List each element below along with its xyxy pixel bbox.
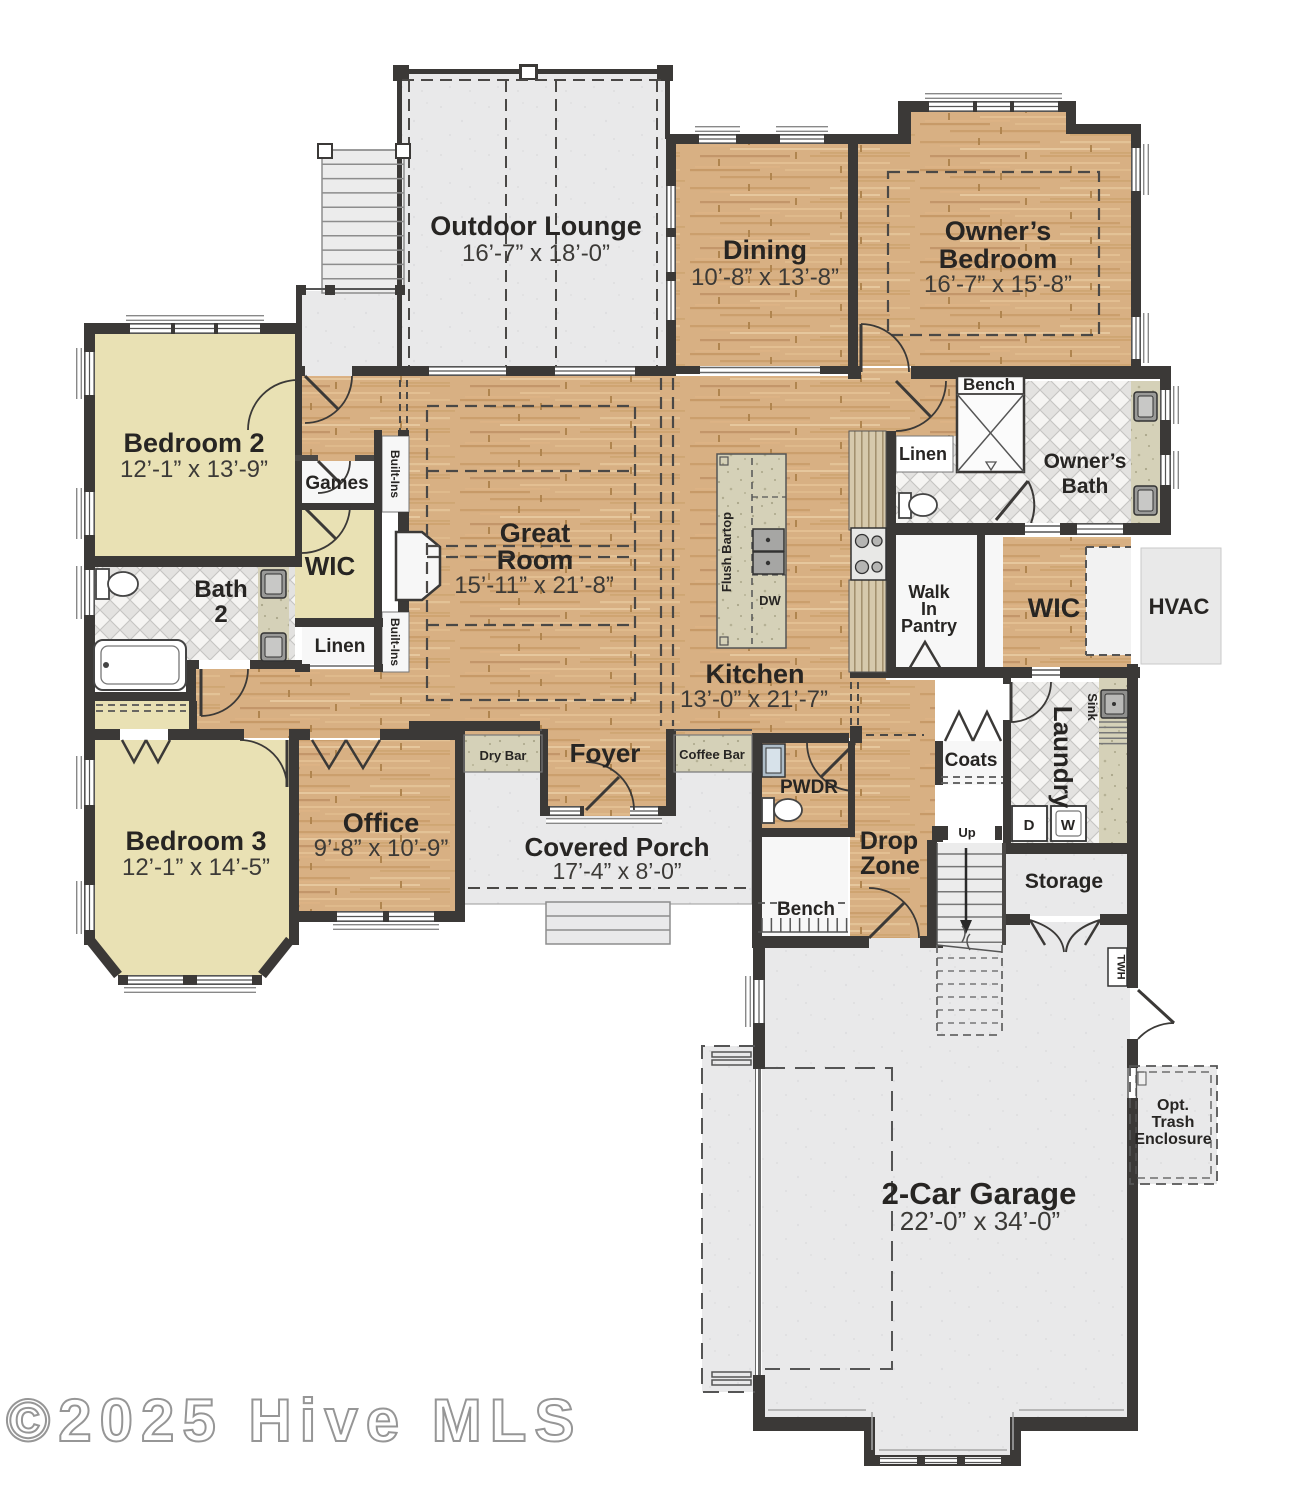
svg-text:DW: DW	[759, 593, 781, 608]
svg-text:Storage: Storage	[1025, 870, 1103, 893]
svg-text:Flush Bartop: Flush Bartop	[719, 512, 734, 592]
svg-text:Bedroom: Bedroom	[939, 244, 1058, 274]
svg-text:W: W	[1061, 817, 1076, 834]
svg-text:Games: Games	[305, 473, 368, 494]
svg-text:Bedroom 3: Bedroom 3	[125, 826, 266, 856]
svg-text:Owner’s: Owner’s	[1044, 450, 1127, 473]
svg-text:Coats: Coats	[945, 750, 998, 771]
svg-text:13’-0” x 21’-7”: 13’-0” x 21’-7”	[680, 686, 828, 713]
svg-text:16’-7” x 18’-0”: 16’-7” x 18’-0”	[462, 240, 610, 267]
svg-text:Room: Room	[497, 545, 574, 575]
svg-text:Kitchen: Kitchen	[705, 659, 804, 689]
svg-text:16’-7” x 15’-8”: 16’-7” x 15’-8”	[924, 271, 1072, 298]
svg-text:Bench: Bench	[777, 899, 835, 920]
svg-text:WIC: WIC	[1028, 593, 1080, 623]
svg-text:Sink: Sink	[1085, 693, 1100, 721]
svg-text:D: D	[1024, 817, 1035, 834]
svg-text:Linen: Linen	[899, 444, 947, 464]
svg-text:PWDR: PWDR	[780, 777, 838, 798]
svg-text:Office: Office	[343, 808, 420, 838]
svg-text:HVAC: HVAC	[1149, 594, 1210, 619]
svg-text:Great: Great	[500, 518, 571, 548]
svg-text:12’-1” x 14’-5”: 12’-1” x 14’-5”	[122, 854, 270, 881]
svg-text:Dry Bar: Dry Bar	[480, 748, 527, 763]
svg-text:Up: Up	[958, 825, 975, 840]
svg-text:Enclosure: Enclosure	[1134, 1131, 1211, 1148]
svg-text:Bench: Bench	[963, 375, 1015, 394]
svg-text:Bedroom 2: Bedroom 2	[123, 428, 264, 458]
svg-text:17’-4” x 8’-0”: 17’-4” x 8’-0”	[552, 858, 681, 884]
svg-text:©2025 Hive MLS: ©2025 Hive MLS	[6, 1387, 582, 1454]
svg-text:Drop: Drop	[860, 827, 918, 855]
svg-text:Owner’s: Owner’s	[945, 216, 1052, 246]
svg-text:Bath: Bath	[1062, 475, 1109, 498]
svg-text:Outdoor Lounge: Outdoor Lounge	[430, 211, 641, 241]
svg-text:Zone: Zone	[860, 852, 920, 880]
svg-text:15’-11” x 21’-8”: 15’-11” x 21’-8”	[454, 572, 614, 599]
svg-text:2: 2	[214, 601, 227, 628]
svg-text:Laundry: Laundry	[1048, 706, 1078, 809]
svg-text:Foyer: Foyer	[570, 738, 641, 768]
svg-text:TWH: TWH	[1115, 954, 1127, 979]
svg-text:22’-0” x 34’-0”: 22’-0” x 34’-0”	[900, 1206, 1060, 1236]
svg-text:Pantry: Pantry	[901, 616, 957, 636]
svg-text:Dining: Dining	[723, 235, 807, 265]
svg-text:12’-1” x 13’-9”: 12’-1” x 13’-9”	[120, 456, 268, 483]
svg-text:Trash: Trash	[1152, 1114, 1195, 1131]
svg-text:Bath: Bath	[194, 576, 247, 603]
svg-text:9’-8” x 10’-9”: 9’-8” x 10’-9”	[314, 835, 449, 862]
svg-text:Built-Ins: Built-Ins	[388, 450, 402, 498]
svg-text:Linen: Linen	[315, 636, 366, 657]
svg-text:WIC: WIC	[305, 551, 356, 581]
svg-text:Opt.: Opt.	[1157, 1097, 1189, 1114]
svg-text:Coffee Bar: Coffee Bar	[679, 747, 745, 762]
svg-text:Built-Ins: Built-Ins	[388, 618, 402, 666]
svg-text:10’-8” x 13’-8”: 10’-8” x 13’-8”	[691, 264, 839, 291]
